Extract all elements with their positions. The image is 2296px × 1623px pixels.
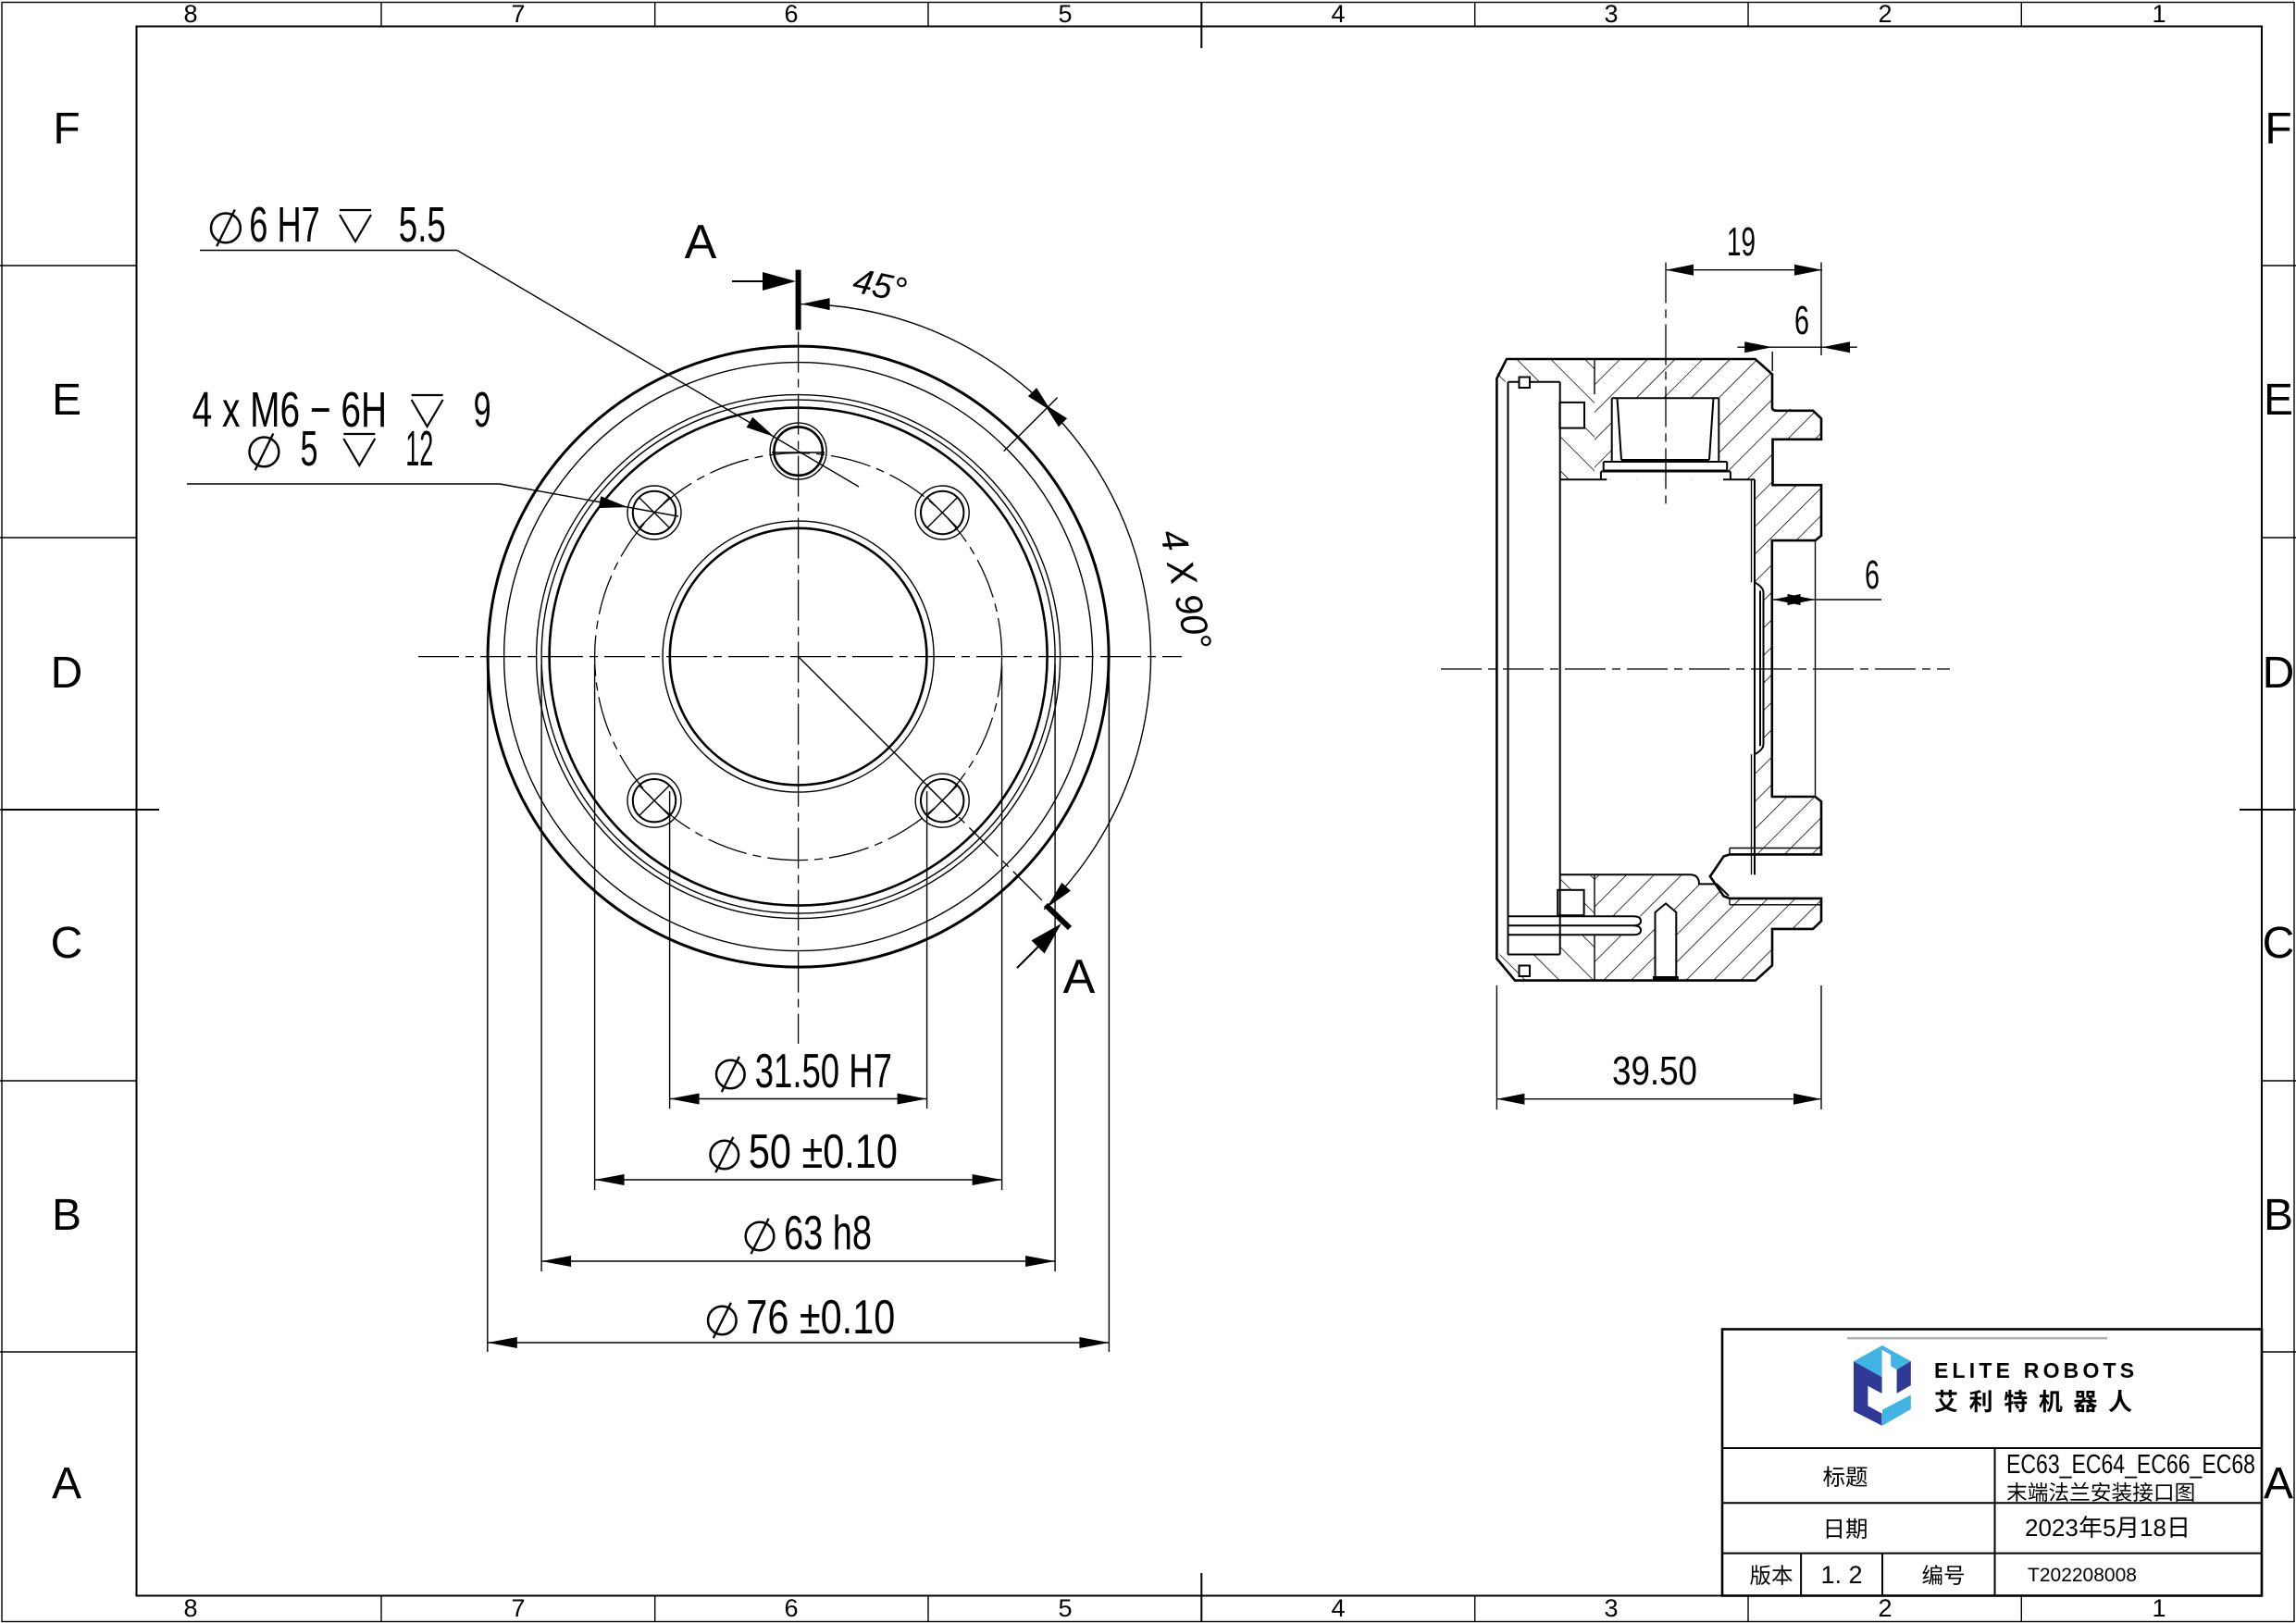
- svg-text:2023: 2023: [2025, 1514, 2079, 1542]
- svg-text:F: F: [53, 105, 80, 154]
- svg-text:2: 2: [1878, 1594, 1892, 1622]
- svg-text:31.50 H7: 31.50 H7: [755, 1045, 892, 1098]
- svg-text:6: 6: [1865, 552, 1880, 598]
- svg-text:C: C: [51, 919, 83, 968]
- svg-text:5: 5: [2103, 1514, 2116, 1542]
- svg-text:9: 9: [474, 382, 491, 438]
- svg-text:5.5: 5.5: [399, 197, 446, 253]
- svg-text:ELITE ROBOTS: ELITE ROBOTS: [1934, 1358, 2138, 1382]
- svg-text:A: A: [2264, 1459, 2293, 1508]
- svg-text:1: 1: [2152, 0, 2166, 28]
- svg-text:5: 5: [301, 421, 318, 477]
- svg-text:C: C: [2263, 919, 2295, 968]
- svg-text:7: 7: [511, 0, 525, 28]
- svg-text:4 x M6 − 6H: 4 x M6 − 6H: [192, 382, 387, 438]
- svg-text:6: 6: [784, 1594, 798, 1622]
- svg-text:5: 5: [1058, 0, 1072, 28]
- svg-text:12: 12: [405, 421, 433, 477]
- svg-text:4: 4: [1331, 0, 1345, 28]
- svg-text:7: 7: [511, 1594, 525, 1622]
- svg-text:A: A: [52, 1459, 81, 1508]
- svg-text:T202208008: T202208008: [2028, 1565, 2137, 1586]
- svg-text:D: D: [51, 649, 83, 698]
- svg-text:A: A: [1063, 950, 1096, 1004]
- svg-text:8: 8: [183, 1594, 197, 1622]
- svg-text:E: E: [2264, 376, 2293, 425]
- svg-text:5: 5: [1058, 1594, 1072, 1622]
- svg-text:6: 6: [1794, 298, 1809, 343]
- svg-text:A: A: [685, 216, 717, 269]
- svg-text:1: 1: [2152, 1594, 2166, 1622]
- svg-text:EC63_EC64_EC66_EC68: EC63_EC64_EC66_EC68: [2006, 1450, 2255, 1480]
- svg-text:39.50: 39.50: [1612, 1048, 1697, 1094]
- svg-text:D: D: [2263, 649, 2295, 698]
- svg-text:63 h8: 63 h8: [784, 1207, 872, 1260]
- svg-text:50 ±0.10: 50 ±0.10: [749, 1125, 898, 1179]
- svg-text:8: 8: [183, 0, 197, 28]
- svg-text:B: B: [52, 1191, 81, 1240]
- svg-text:76 ±0.10: 76 ±0.10: [746, 1291, 895, 1344]
- svg-text:B: B: [2264, 1191, 2293, 1240]
- svg-text:3: 3: [1604, 0, 1618, 28]
- svg-text:3: 3: [1604, 1594, 1618, 1622]
- svg-text:19: 19: [1727, 219, 1756, 265]
- svg-text:E: E: [52, 376, 81, 425]
- svg-text:2: 2: [1878, 0, 1892, 28]
- svg-text:F: F: [2265, 105, 2291, 154]
- svg-text:1. 2: 1. 2: [1820, 1561, 1862, 1589]
- svg-text:4: 4: [1331, 1594, 1345, 1622]
- svg-text:18: 18: [2140, 1514, 2166, 1542]
- svg-text:6: 6: [784, 0, 798, 28]
- svg-text:6 H7: 6 H7: [249, 197, 320, 253]
